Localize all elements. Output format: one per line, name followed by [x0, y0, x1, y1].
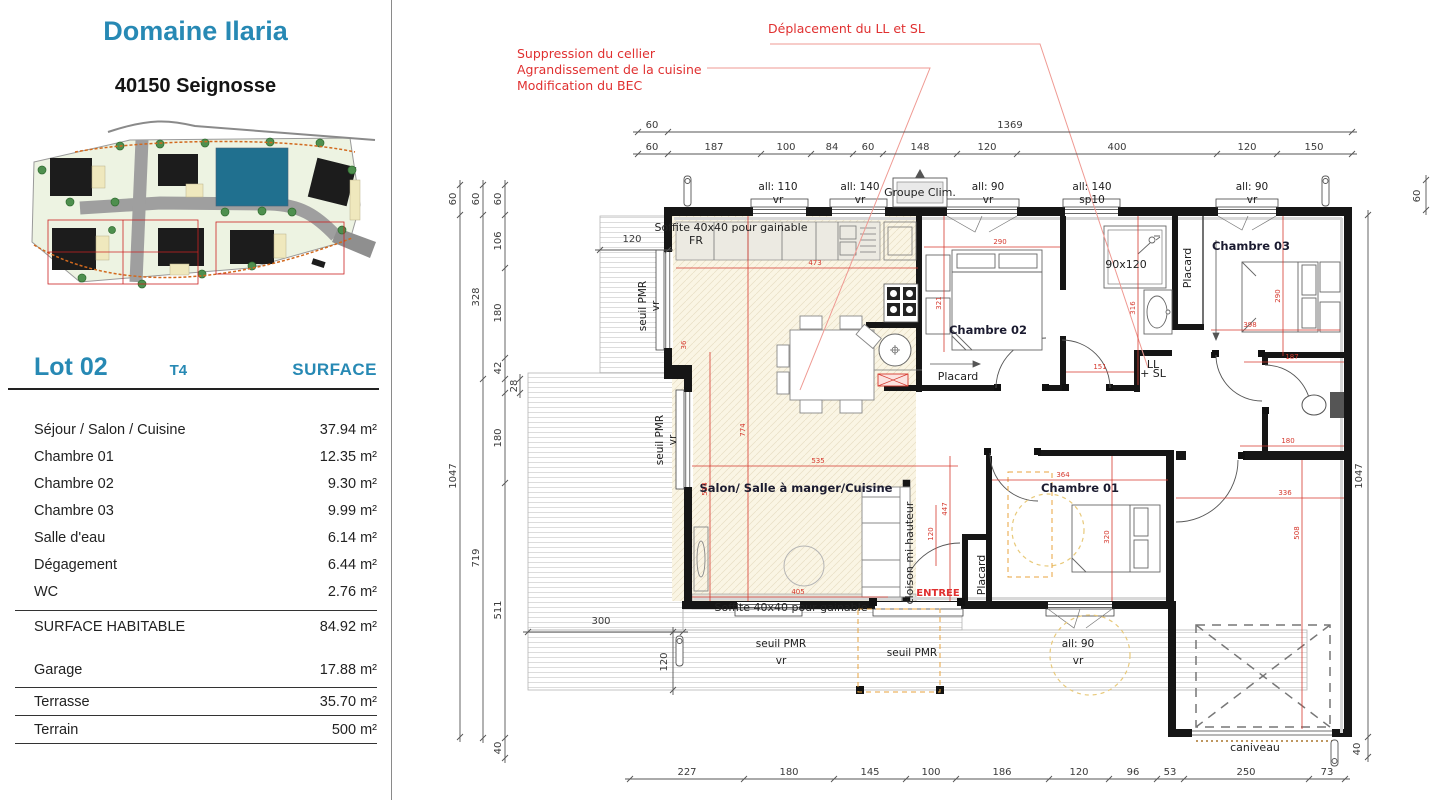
- plan-label: 1047: [1354, 463, 1365, 488]
- plan-label: 180: [493, 428, 504, 447]
- row-value: 9.99 m²: [328, 503, 377, 519]
- plan-label: + SL: [1140, 367, 1167, 380]
- red-dim: 535: [811, 457, 824, 465]
- entree-label: ENTREE: [916, 588, 960, 599]
- plan-label: Placard: [975, 555, 988, 596]
- plan-label: all: 90: [1236, 181, 1269, 193]
- plan-label: 60: [493, 193, 504, 206]
- red-dim: 473: [808, 259, 821, 267]
- row-value: 12.35 m²: [320, 449, 377, 465]
- table-row: Garage17.88 m²: [15, 656, 377, 683]
- red-dim: 398: [1243, 321, 1256, 329]
- row-label: Chambre 02: [34, 476, 114, 492]
- plan-label: 300: [591, 616, 610, 627]
- table-row: Dégagement6.44 m²: [15, 551, 377, 578]
- project-address: 40150 Seignosse: [0, 75, 391, 98]
- plan-label: 328: [471, 287, 482, 306]
- plan-label: 42: [493, 362, 504, 375]
- plan-label: all: 140: [840, 181, 879, 193]
- row-value: 6.14 m²: [328, 530, 377, 546]
- plan-label: 84: [826, 142, 839, 153]
- room-label-chambre02: Chambre 02: [949, 323, 1027, 337]
- plan-label: all: 90: [972, 181, 1005, 193]
- red-dim: 447: [941, 502, 949, 515]
- plan-label: 120: [659, 652, 670, 671]
- dim-chain: [633, 129, 1357, 135]
- fridge-label: FR: [689, 234, 703, 247]
- toilet: [1302, 392, 1344, 418]
- plan-label: 120: [622, 234, 641, 245]
- shower: [1104, 226, 1166, 288]
- floor-plan: 6013696018710084601481204001201502271801…: [393, 0, 1447, 800]
- plan-label: vr: [1073, 655, 1084, 667]
- plan-label: 60: [471, 193, 482, 206]
- surface-table-header: Lot 02 T4 SURFACE: [8, 353, 379, 390]
- plan-label: Placard: [1181, 248, 1194, 289]
- plan-label: 40: [493, 742, 504, 755]
- row-value: 9.30 m²: [328, 476, 377, 492]
- table-row: Salle d'eau6.14 m²: [15, 524, 377, 551]
- row-label: SURFACE HABITABLE: [34, 619, 185, 635]
- page: Domaine Ilaria 40150 Seignosse: [0, 0, 1447, 800]
- red-dim: 290: [993, 238, 1006, 246]
- red-dim: 321: [935, 296, 943, 309]
- cooktop: [884, 284, 918, 322]
- plan-label: all: 140: [1072, 181, 1111, 193]
- table-row: Terrain500 m²: [15, 715, 377, 744]
- washbasin: [1144, 290, 1172, 334]
- plan-label: seuil PMR: [756, 638, 806, 650]
- plan-label: all: 90: [1062, 638, 1095, 650]
- plan-label: 60: [862, 142, 875, 153]
- plan-label: 96: [1127, 767, 1140, 778]
- row-label: Dégagement: [34, 557, 117, 573]
- lot-number: Lot 02: [34, 353, 108, 382]
- red-dim: 364: [1056, 471, 1070, 479]
- plan-label: all: 110: [758, 181, 797, 193]
- project-title: Domaine Ilaria: [0, 16, 391, 47]
- row-value: 37.94 m²: [320, 422, 377, 438]
- plan-label: vr: [667, 434, 679, 445]
- groupe-clim-label: Groupe Clim.: [884, 186, 956, 199]
- red-dim: 120: [927, 527, 935, 540]
- row-label: Garage: [34, 662, 82, 678]
- radiator: [878, 374, 908, 386]
- lot-type: T4: [170, 362, 188, 379]
- plan-label: Soffite 40x40 pour gainable: [715, 601, 868, 614]
- plan-label: 187: [704, 142, 723, 153]
- row-value: 6.44 m²: [328, 557, 377, 573]
- row-value: 2.76 m²: [328, 584, 377, 600]
- dim-chain: [480, 180, 486, 743]
- red-dim: 336: [1278, 489, 1292, 497]
- site-road-vertical: [136, 140, 142, 282]
- row-label: Salle d'eau: [34, 530, 105, 546]
- info-panel: Domaine Ilaria 40150 Seignosse: [0, 0, 392, 800]
- red-dim: 405: [791, 588, 804, 596]
- plan-label: 1369: [997, 120, 1022, 131]
- row-value: 17.88 m²: [320, 662, 377, 678]
- plan-label: vr: [776, 655, 787, 667]
- plan-label: 180: [493, 303, 504, 322]
- row-value: 84.92 m²: [320, 619, 377, 635]
- table-row: Chambre 039.99 m²: [15, 497, 377, 524]
- table-row: Chambre 029.30 m²: [15, 470, 377, 497]
- table-row: Séjour / Salon / Cuisine37.94 m²: [15, 416, 377, 443]
- plan-label: 719: [471, 548, 482, 567]
- red-dim: 187: [1285, 353, 1298, 361]
- site-lot-highlight: [216, 148, 288, 206]
- annotation-left: Suppression du cellier: [517, 46, 656, 61]
- dim-chain: [502, 180, 508, 763]
- table-row: Chambre 0112.35 m²: [15, 443, 377, 470]
- room-label-salon: Salon/ Salle à manger/Cuisine: [700, 481, 893, 495]
- row-value: 35.70 m²: [320, 694, 377, 710]
- row-label: Chambre 01: [34, 449, 114, 465]
- plan-label: 100: [776, 142, 795, 153]
- plan-label: 250: [1236, 767, 1255, 778]
- plan-label: 60: [646, 142, 659, 153]
- red-dim: 180: [1281, 437, 1294, 445]
- row-value: 500 m²: [332, 722, 377, 738]
- surface-column-header: SURFACE: [292, 360, 377, 380]
- annotation-left: Agrandissement de la cuisine: [517, 62, 702, 77]
- bed-chambre01: [1072, 505, 1160, 572]
- plan-label: 28: [509, 380, 520, 393]
- red-dim: 36: [680, 340, 688, 349]
- room-label-chambre03: Chambre 03: [1212, 239, 1290, 253]
- plan-label: 227: [677, 767, 696, 778]
- plan-label: seuil PMR: [887, 647, 937, 659]
- plan-label: 73: [1321, 767, 1334, 778]
- row-label: Terrain: [34, 722, 78, 738]
- row-label: WC: [34, 584, 58, 600]
- red-dim: 514: [701, 482, 709, 496]
- plan-label: 100: [921, 767, 940, 778]
- plan-label: 60: [448, 193, 459, 206]
- plan-label: 511: [493, 600, 504, 619]
- dim-chain: [457, 180, 463, 742]
- plan-label: 120: [1069, 767, 1088, 778]
- plan-label: 120: [977, 142, 996, 153]
- plan-label: 400: [1107, 142, 1126, 153]
- plan-label: vr: [650, 300, 662, 311]
- plan-label: seuil PMR: [637, 281, 649, 331]
- surface-table: Séjour / Salon / Cuisine37.94 m²Chambre …: [15, 416, 377, 744]
- site-access-road: [108, 121, 375, 140]
- dim-chain: [1423, 175, 1429, 215]
- row-label: Séjour / Salon / Cuisine: [34, 422, 186, 438]
- plan-label: 53: [1164, 767, 1177, 778]
- plan-label: 150: [1304, 142, 1323, 153]
- dining-table: [777, 316, 881, 413]
- plan-label: 60: [1412, 190, 1423, 203]
- bed-chambre03: [1242, 262, 1340, 332]
- plan-label: 40: [1352, 743, 1363, 756]
- dim-chain: [1365, 210, 1371, 762]
- plan-label: Soffite 40x40 pour gainable: [655, 221, 808, 234]
- table-row: WC2.76 m²: [15, 578, 377, 605]
- partition-label: cloison mi-hauteur: [903, 501, 916, 604]
- red-dim: 508: [1293, 526, 1301, 539]
- plan-label: vr: [855, 194, 866, 206]
- plan-label: 60: [646, 120, 659, 131]
- red-dim: 316: [1129, 301, 1137, 315]
- plan-label: Placard: [938, 370, 979, 383]
- plan-label: 120: [1237, 142, 1256, 153]
- room-label-chambre01: Chambre 01: [1041, 481, 1119, 495]
- red-dim: 320: [1103, 530, 1111, 543]
- plan-label: 148: [910, 142, 929, 153]
- floor-plan-drawing: 6013696018710084601481204001201502271801…: [393, 0, 1447, 800]
- plan-label: vr: [983, 194, 994, 206]
- annotation-right: Déplacement du LL et SL: [768, 21, 925, 36]
- red-dim: 151: [1093, 363, 1106, 371]
- plan-label: 186: [992, 767, 1011, 778]
- garage-door: [1192, 729, 1332, 741]
- plan-label: sp10: [1079, 194, 1105, 206]
- red-dim: 774: [739, 423, 747, 437]
- plan-label: 145: [860, 767, 879, 778]
- table-row: Terrasse35.70 m²: [15, 687, 377, 715]
- plan-label: vr: [1247, 194, 1258, 206]
- row-label: Terrasse: [34, 694, 90, 710]
- plan-label: 106: [493, 231, 504, 250]
- plan-label: vr: [773, 194, 784, 206]
- shower-size-label: 90x120: [1105, 258, 1147, 271]
- red-dim: 290: [1274, 289, 1282, 302]
- plan-label: 1047: [448, 463, 459, 488]
- plan-label: 180: [779, 767, 798, 778]
- site-plan: [20, 110, 380, 323]
- row-label: Chambre 03: [34, 503, 114, 519]
- plan-label: seuil PMR: [654, 415, 666, 465]
- table-row-total: SURFACE HABITABLE84.92 m²: [15, 610, 377, 640]
- annotation-left: Modification du BEC: [517, 78, 642, 93]
- caniveau-label: caniveau: [1230, 741, 1280, 754]
